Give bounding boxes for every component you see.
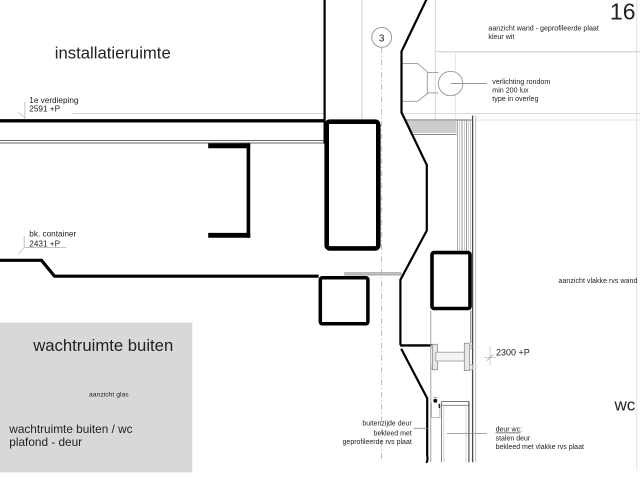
svg-text:verlichting rondom: verlichting rondom — [492, 78, 550, 86]
svg-text:kleur wit: kleur wit — [488, 33, 514, 41]
svg-text:wachtruimte buiten / wc: wachtruimte buiten / wc — [8, 422, 132, 436]
svg-text:plafond - deur: plafond - deur — [9, 435, 82, 449]
svg-text:aanzicht wand - geprofileerde: aanzicht wand - geprofileerde plaat — [488, 25, 598, 33]
svg-text:2591 +P: 2591 +P — [29, 104, 60, 113]
svg-text:2431 +P: 2431 +P — [29, 239, 60, 248]
svg-text:type in overleg: type in overleg — [492, 95, 538, 103]
svg-text:aanzicht vlakke rvs wand: aanzicht vlakke rvs wand — [559, 277, 638, 285]
svg-text:installatieruimte: installatieruimte — [55, 44, 171, 63]
svg-text:deur wc:: deur wc: — [496, 426, 523, 433]
svg-text:bekleed met: bekleed met — [374, 430, 412, 437]
svg-text:bk. container: bk. container — [29, 230, 76, 239]
svg-text:wc: wc — [614, 395, 636, 414]
svg-text:stalen deur: stalen deur — [496, 436, 531, 443]
svg-text:bekleed met vlakke rvs plaat: bekleed met vlakke rvs plaat — [496, 444, 584, 451]
svg-text:3: 3 — [379, 33, 385, 44]
svg-text:buitenzijde deur: buitenzijde deur — [362, 421, 412, 428]
svg-text:aanzicht glas: aanzicht glas — [89, 391, 129, 398]
svg-text:2300 +P: 2300 +P — [496, 347, 530, 357]
svg-text:wachtruimte buiten: wachtruimte buiten — [32, 336, 173, 355]
svg-text:min 200 lux: min 200 lux — [492, 86, 529, 94]
svg-text:16: 16 — [610, 0, 636, 25]
svg-text:geprofileerde rvs plaat: geprofileerde rvs plaat — [343, 439, 412, 446]
